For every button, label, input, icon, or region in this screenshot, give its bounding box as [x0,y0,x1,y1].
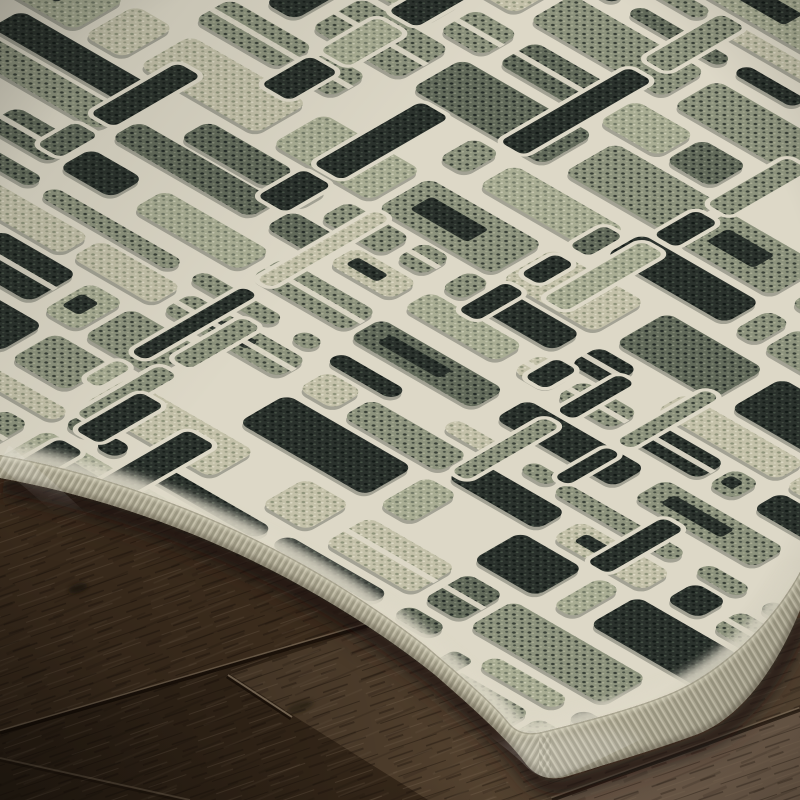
rug-product-photo [0,0,800,800]
vignette [0,0,800,800]
photo-stage [0,0,800,800]
vignette-overlay [0,0,800,800]
